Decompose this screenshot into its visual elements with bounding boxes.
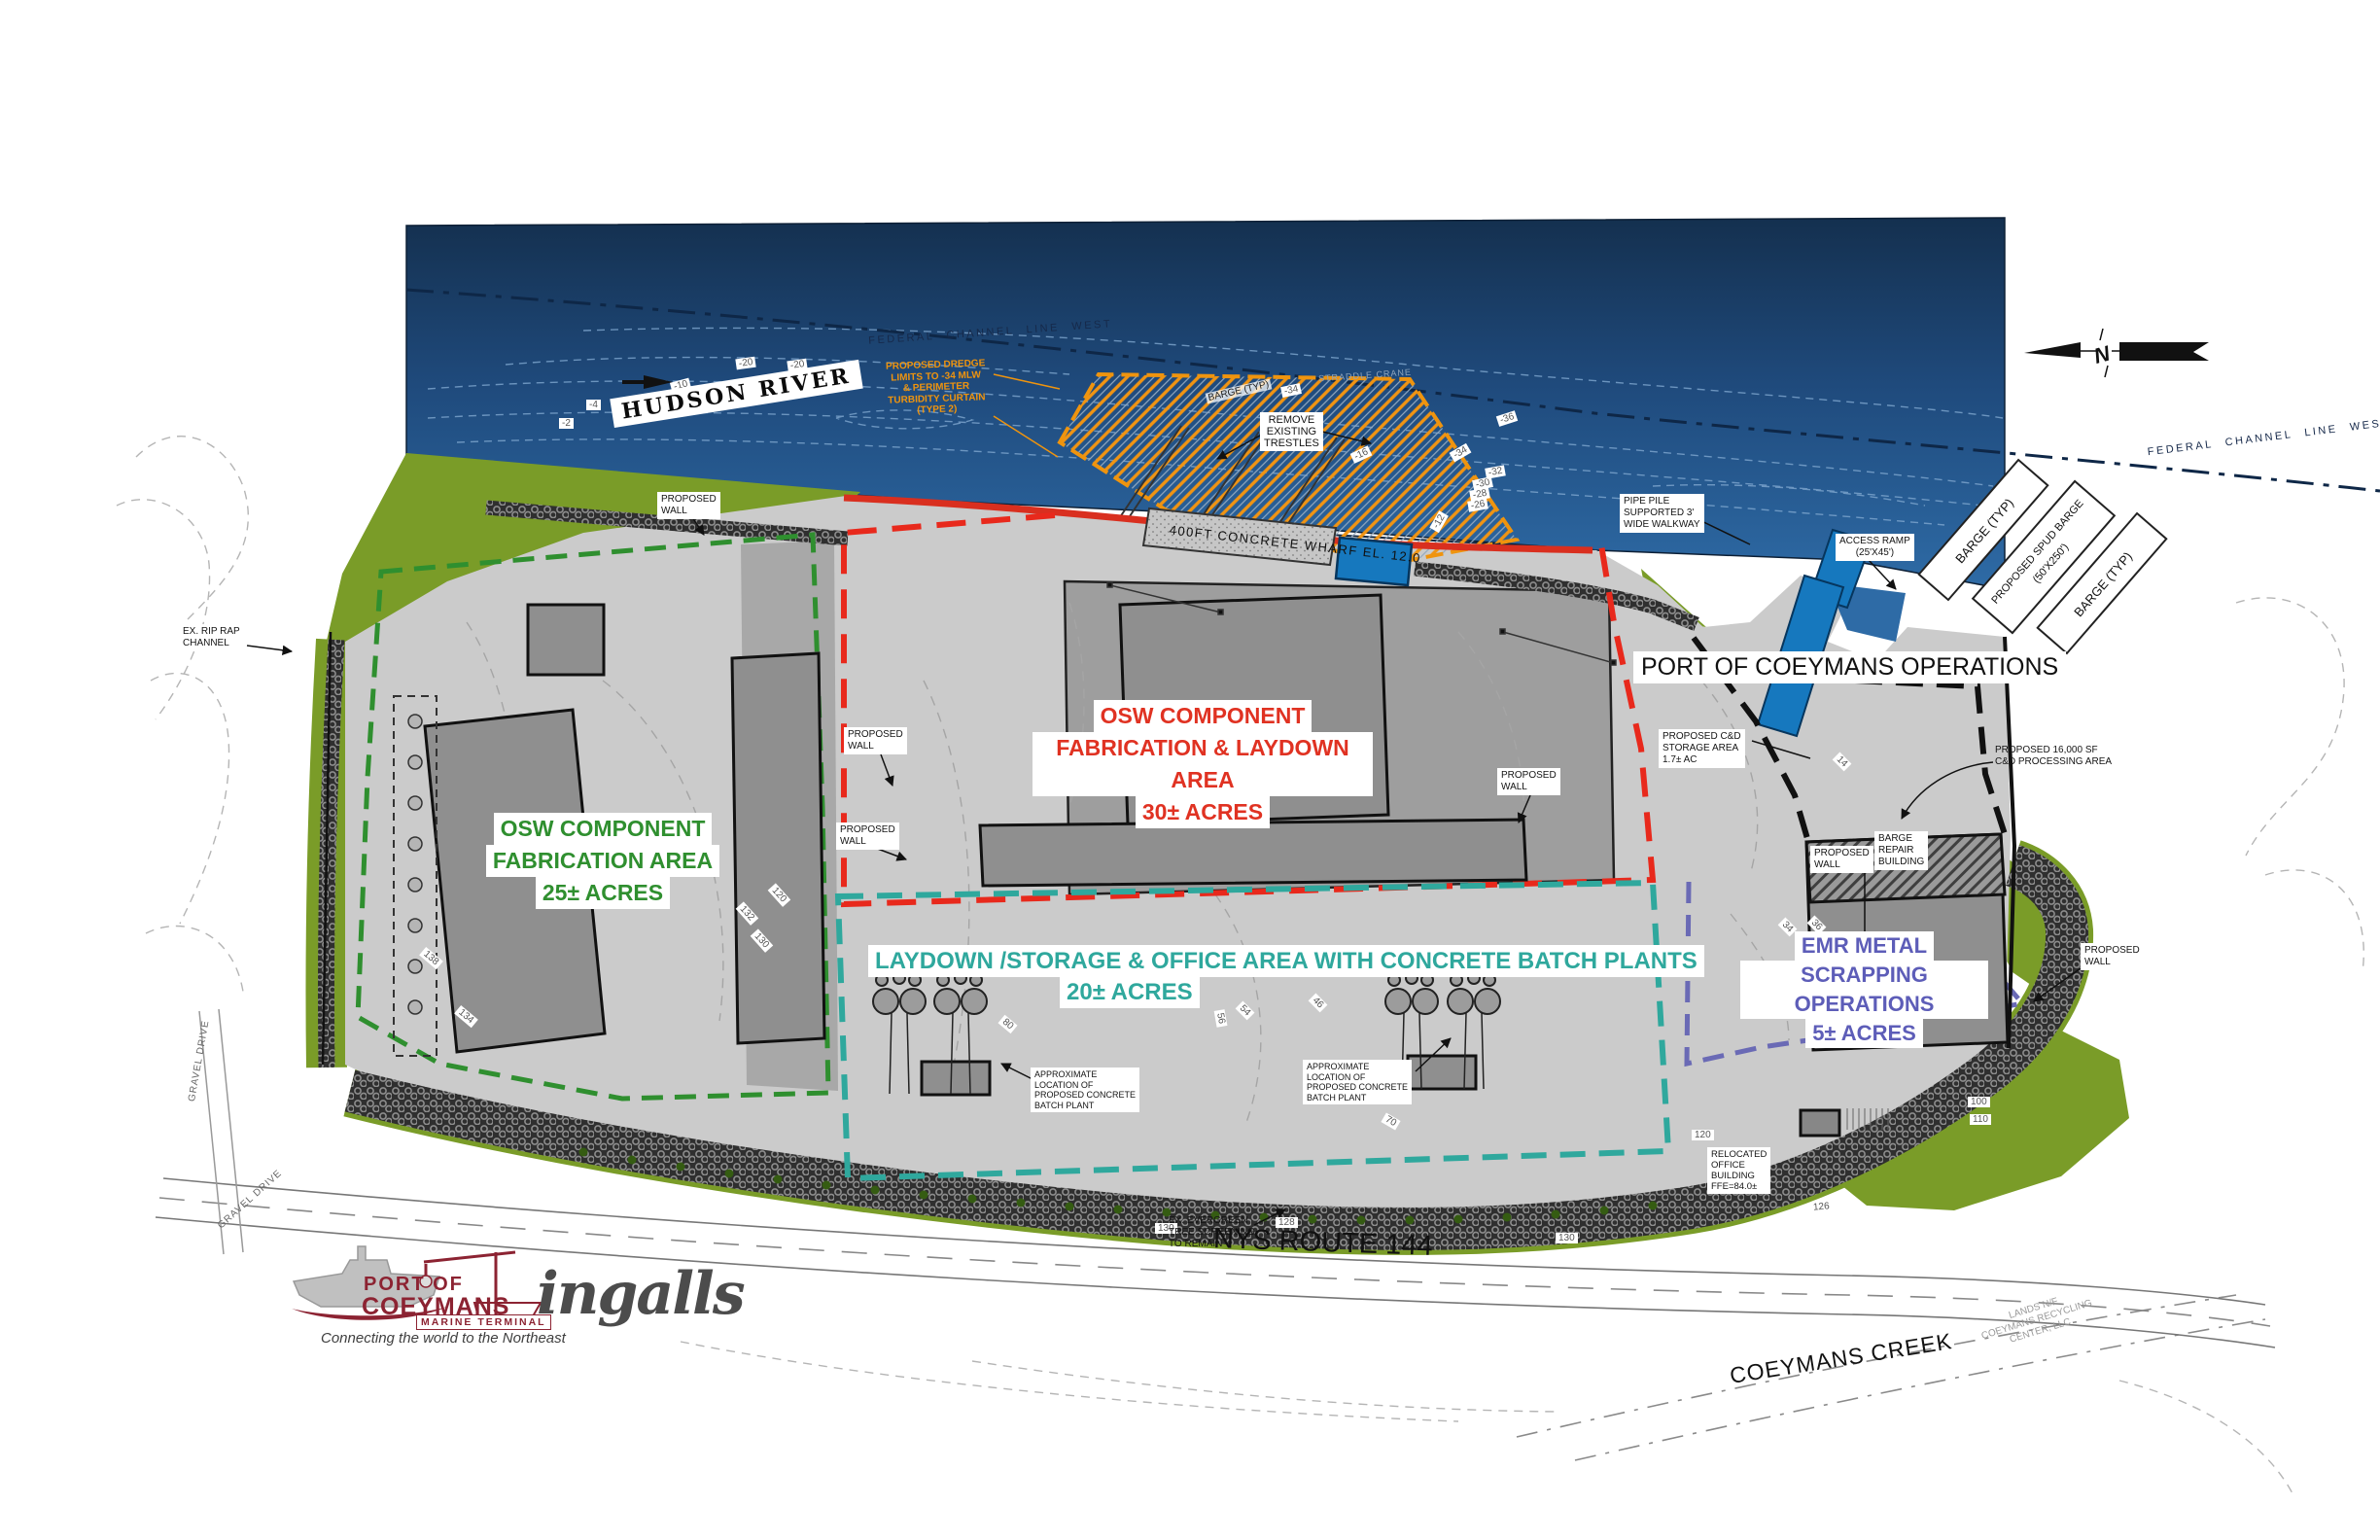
- depth-label: -4: [586, 400, 601, 410]
- coeymans-creek-lines: [1517, 1295, 2265, 1460]
- contour-label: 130: [1556, 1233, 1578, 1243]
- building-small-north: [528, 605, 604, 675]
- contour-label: 110: [1970, 1114, 1991, 1125]
- rip-rap-note: EX. RIP RAP CHANNEL: [179, 624, 244, 651]
- area-label-storage-acres: 20± ACRES: [1060, 976, 1200, 1008]
- north-arrow: N: [2024, 329, 2209, 377]
- building-relocated-office: [1801, 1110, 1839, 1136]
- proposed-wall-note-6: PROPOSEDWALL: [2081, 943, 2144, 970]
- proposed-wall-note-2: PROPOSEDWALL: [844, 727, 907, 754]
- area-label-operations: PORT OF COEYMANS OPERATIONS: [1633, 651, 2066, 683]
- batch-plant-note-2: APPROXIMATE LOCATION OF PROPOSED CONCRET…: [1303, 1060, 1412, 1104]
- area-label-emr: EMR METAL SCRAPPING OPERATIONS 5± ACRES: [1740, 931, 1988, 1048]
- cd-processing-note: PROPOSED 16,000 SF C&D PROCESSING AREA: [1995, 745, 2112, 768]
- proposed-wall-note-1: PROPOSEDWALL: [657, 492, 720, 519]
- contour-label: 126: [1810, 1201, 1834, 1213]
- building-laydown-long: [980, 820, 1526, 886]
- batch-plant-note-1: APPROXIMATE LOCATION OF PROPOSED CONCRET…: [1031, 1067, 1139, 1112]
- ingalls-logo: ingalls: [537, 1260, 744, 1328]
- poc-logo-tagline: Connecting the world to the Northeast: [321, 1330, 566, 1347]
- contour-label: 100: [1968, 1097, 1990, 1107]
- contour-label: 120: [1692, 1130, 1714, 1140]
- proposed-wall-note-3: PROPOSEDWALL: [836, 822, 899, 850]
- north-letter: N: [2091, 340, 2114, 368]
- depth-label: -2: [559, 418, 574, 429]
- remove-trestles-note: REMOVE EXISTING TRESTLES: [1260, 412, 1323, 451]
- barge-repair-note: BARGE REPAIR BUILDING: [1874, 831, 1928, 870]
- dredge-limits-note: PROPOSED DREDGE LIMITS TO -34 MLW & PERI…: [877, 358, 996, 418]
- building-batch-office-1: [922, 1062, 990, 1095]
- area-label-fabrication: OSW COMPONENT FABRICATION AREA 25± ACRES: [457, 813, 749, 909]
- area-label-storage: LAYDOWN /STORAGE & OFFICE AREA WITH CONC…: [868, 945, 1704, 977]
- relocated-office-note: RELOCATED OFFICE BUILDING FFE=84.0±: [1707, 1147, 1770, 1194]
- cd-storage-note: PROPOSED C&D STORAGE AREA 1.7± AC: [1659, 729, 1745, 768]
- site-plan: BARGE (TYP) PROPOSED SPUD BARGE (50'X250…: [0, 0, 2380, 1540]
- pipe-pile-note: PIPE PILE SUPPORTED 3' WIDE WALKWAY: [1620, 494, 1704, 533]
- proposed-wall-note-5: PROPOSEDWALL: [1810, 846, 1873, 873]
- access-ramp-note: ACCESS RAMP (25'X45'): [1836, 534, 1914, 561]
- proposed-wall-note-4: PROPOSEDWALL: [1497, 768, 1560, 795]
- poc-logo-marine-terminal: MARINE TERMINAL: [416, 1314, 551, 1330]
- area-label-laydown: OSW COMPONENT FABRICATION & LAYDOWN AREA…: [1032, 700, 1373, 828]
- building-batch-office-2: [1408, 1056, 1476, 1089]
